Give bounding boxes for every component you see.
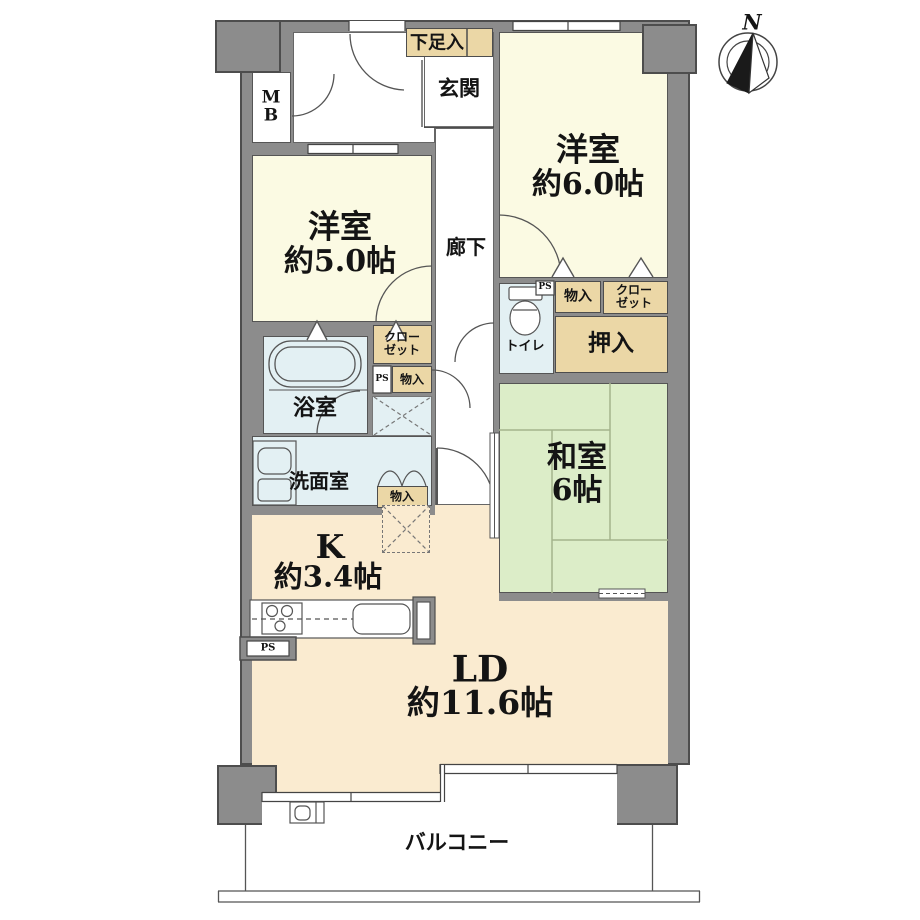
label-entrance: 玄関	[438, 78, 480, 101]
label-meter-box-line1: M	[262, 89, 281, 107]
corridor-floor	[435, 128, 494, 505]
label-living-size: 約11.6帖	[407, 685, 553, 721]
label-closet-upper-line1: クロー	[616, 284, 652, 297]
label-toilet: トイレ	[505, 340, 544, 354]
label-ps-kitchen: PS	[261, 644, 276, 655]
kitchen-floor	[252, 515, 440, 793]
living-floor-mid	[435, 505, 499, 766]
label-storage-left: 物入	[400, 374, 424, 387]
label-hallway: 廊下	[446, 237, 486, 259]
label-washroom: 洗面室	[289, 471, 349, 493]
label-japanese-name: 和室	[547, 442, 607, 474]
label-closet-left-line2: ゼット	[384, 344, 420, 357]
floor-plan: 洋室 約6.0帖 洋室 約5.0帖 和室 6帖 LD 約11.6帖 K 約3.4…	[0, 0, 920, 920]
balcony-floor-right	[445, 774, 617, 825]
label-closet-left-line1: クロー	[384, 331, 420, 344]
label-western5-size: 約5.0帖	[284, 246, 396, 278]
pillar-bottom-right	[615, 764, 678, 825]
compass-needle-white	[749, 33, 769, 93]
label-western5-name: 洋室	[308, 210, 372, 245]
label-shoe-cabinet: 下足入	[410, 33, 464, 52]
fridge-space	[382, 505, 430, 553]
label-kitchen-size: 約3.4帖	[274, 561, 382, 592]
label-ps-toilet: PS	[538, 283, 551, 293]
pillar-top-left	[215, 20, 281, 73]
label-ps-left: PS	[375, 375, 388, 385]
label-bathroom: 浴室	[293, 397, 337, 421]
balcony-floor-left	[262, 802, 445, 825]
window-ld-left	[262, 792, 440, 802]
label-closet-upper: クロー ゼット	[616, 284, 652, 310]
label-storage-washroom: 物入	[390, 491, 414, 504]
label-japanese-size: 6帖	[552, 475, 603, 507]
label-meter-box-line2: B	[262, 107, 281, 125]
label-western6-name: 洋室	[556, 133, 620, 168]
label-closet-left: クロー ゼット	[384, 331, 420, 357]
toilet-floor	[499, 283, 554, 374]
washer-space	[372, 396, 432, 436]
compass-needle-black	[727, 33, 753, 93]
label-compass-north: N	[742, 12, 761, 35]
pillar-top-right	[642, 24, 697, 74]
label-balcony: バルコニー	[405, 832, 510, 855]
label-western6-size: 約6.0帖	[532, 169, 644, 201]
label-storage-upper: 物入	[564, 289, 592, 304]
label-closet-upper-line2: ゼット	[616, 297, 652, 310]
label-oshiire: 押入	[588, 332, 634, 357]
label-meter-box: M B	[262, 89, 281, 126]
compass-rose	[719, 33, 777, 93]
